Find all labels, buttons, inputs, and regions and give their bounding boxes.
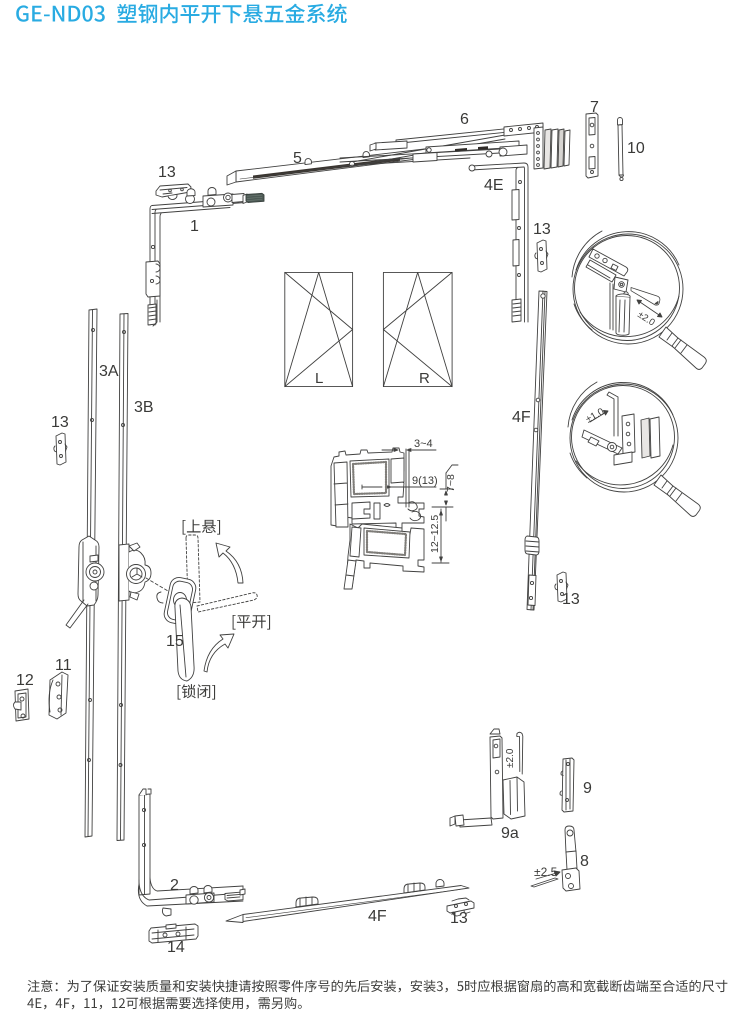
svg-text:13: 13 [562, 591, 580, 608]
svg-text:8: 8 [580, 853, 589, 870]
svg-text:6: 6 [460, 111, 469, 128]
svg-text:2: 2 [170, 877, 179, 894]
svg-text:13: 13 [158, 164, 176, 181]
svg-text:R: R [419, 370, 430, 387]
svg-text:9(13): 9(13) [412, 475, 438, 487]
svg-text:L: L [315, 370, 323, 387]
svg-text:9: 9 [583, 780, 592, 797]
svg-text:13: 13 [533, 221, 551, 238]
svg-text:15: 15 [166, 633, 184, 650]
svg-text:14: 14 [167, 939, 185, 956]
svg-text:7: 7 [590, 99, 599, 116]
svg-text:±2.0: ±2.0 [505, 748, 516, 768]
svg-text:12: 12 [16, 672, 34, 689]
svg-text:10: 10 [627, 140, 645, 157]
svg-text:3A: 3A [99, 363, 119, 380]
svg-text:13: 13 [450, 910, 468, 927]
svg-text:5: 5 [293, 150, 302, 167]
svg-text:11: 11 [55, 657, 72, 674]
svg-text:1: 1 [190, 218, 199, 235]
svg-text:9a: 9a [501, 825, 519, 842]
svg-text:3~4: 3~4 [414, 438, 433, 450]
svg-text:4E: 4E [484, 177, 504, 194]
svg-text:3B: 3B [134, 399, 154, 416]
svg-text:13: 13 [51, 414, 69, 431]
svg-text:4F: 4F [368, 908, 387, 925]
svg-text:±2.5: ±2.5 [534, 865, 558, 879]
svg-text:12~12.5: 12~12.5 [429, 515, 441, 553]
svg-text:7~8: 7~8 [445, 474, 457, 492]
svg-text:4F: 4F [512, 409, 531, 426]
